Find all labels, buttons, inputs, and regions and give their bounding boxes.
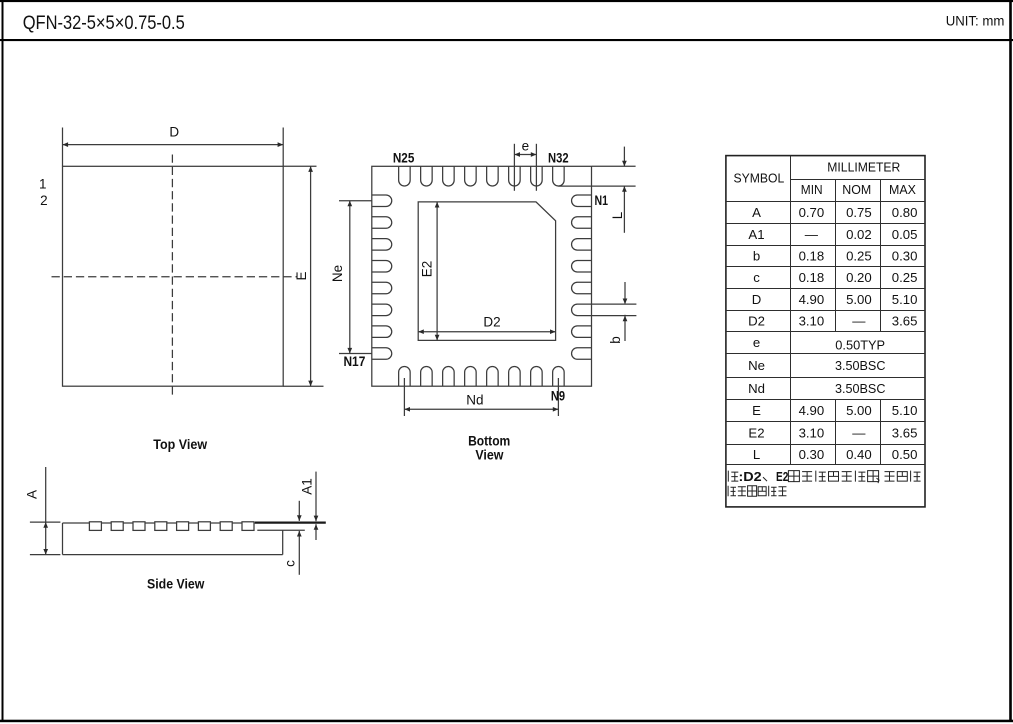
svg-text:N9: N9 — [551, 389, 565, 404]
svg-text:4.90: 4.90 — [799, 403, 825, 418]
svg-text:4.90: 4.90 — [799, 292, 825, 307]
svg-text:e: e — [753, 335, 760, 350]
svg-text:MAX: MAX — [889, 182, 916, 197]
svg-text:E: E — [294, 271, 309, 280]
svg-text:Top View: Top View — [153, 437, 207, 452]
svg-text:Ne: Ne — [330, 265, 345, 282]
svg-text:N1: N1 — [595, 193, 609, 208]
svg-text:E2: E2 — [420, 261, 435, 278]
svg-text:5.00: 5.00 — [846, 403, 872, 418]
svg-text:b: b — [753, 249, 760, 264]
svg-text:Nd: Nd — [466, 393, 483, 408]
svg-text:View: View — [475, 447, 504, 462]
svg-text:NOM: NOM — [842, 182, 871, 197]
svg-text:Bottom: Bottom — [468, 434, 510, 449]
svg-text:D2: D2 — [483, 314, 500, 329]
svg-text:QFN-32-5×5×0.75-0.5: QFN-32-5×5×0.75-0.5 — [23, 12, 185, 34]
svg-text:0.80: 0.80 — [892, 205, 918, 220]
svg-text:A: A — [24, 490, 39, 499]
svg-text:c: c — [753, 270, 760, 285]
svg-text:1: 1 — [39, 176, 47, 191]
svg-text:Ne: Ne — [748, 358, 765, 373]
svg-text:c: c — [283, 560, 298, 567]
svg-text:3.10: 3.10 — [799, 426, 825, 441]
svg-text:0.40: 0.40 — [846, 447, 872, 462]
svg-text:E2: E2 — [748, 426, 764, 441]
svg-text:SYMBOL: SYMBOL — [734, 171, 785, 186]
svg-text:—: — — [852, 426, 866, 441]
svg-text:MIN: MIN — [801, 182, 823, 197]
svg-text:3.10: 3.10 — [799, 314, 825, 329]
svg-text:Side View: Side View — [147, 577, 205, 592]
svg-text:0.70: 0.70 — [799, 205, 825, 220]
svg-text:5.10: 5.10 — [892, 292, 918, 307]
svg-text:2: 2 — [40, 193, 48, 208]
svg-text:D2: D2 — [748, 314, 765, 329]
svg-text:N25: N25 — [393, 150, 415, 165]
svg-text:N17: N17 — [343, 354, 365, 369]
svg-text:0.02: 0.02 — [846, 227, 872, 242]
svg-text:3.65: 3.65 — [892, 426, 918, 441]
svg-text:0.05: 0.05 — [892, 227, 918, 242]
svg-text:N32: N32 — [548, 150, 569, 165]
svg-text:0.50: 0.50 — [892, 447, 918, 462]
svg-text:5.10: 5.10 — [892, 403, 918, 418]
svg-text:A1: A1 — [299, 478, 314, 495]
svg-text:—: — — [852, 314, 866, 329]
svg-text:L: L — [610, 211, 625, 219]
svg-text:0.30: 0.30 — [799, 447, 825, 462]
svg-text:0.50TYP: 0.50TYP — [835, 337, 885, 352]
svg-text:Nd: Nd — [748, 381, 765, 396]
svg-text:0.30: 0.30 — [892, 249, 918, 264]
svg-text:MILLIMETER: MILLIMETER — [827, 159, 900, 174]
svg-text::D2: :D2 — [739, 470, 762, 484]
svg-text:D: D — [169, 124, 179, 139]
svg-text:0.25: 0.25 — [846, 249, 872, 264]
svg-text:0.75: 0.75 — [846, 205, 872, 220]
svg-text:0.20: 0.20 — [846, 270, 872, 285]
svg-text:5.00: 5.00 — [846, 292, 872, 307]
svg-text:E2: E2 — [776, 470, 788, 484]
svg-text:0.25: 0.25 — [892, 270, 918, 285]
svg-text:UNIT: mm: UNIT: mm — [946, 14, 1005, 29]
svg-text:E: E — [752, 403, 761, 418]
svg-text:—: — — [805, 227, 819, 242]
svg-text:3.50BSC: 3.50BSC — [835, 358, 886, 373]
svg-text:3.65: 3.65 — [892, 314, 918, 329]
svg-text:0.18: 0.18 — [799, 270, 825, 285]
svg-text:b: b — [608, 336, 623, 344]
svg-text:A: A — [752, 205, 761, 220]
svg-text:L: L — [753, 447, 760, 462]
svg-text:3.50BSC: 3.50BSC — [835, 381, 886, 396]
svg-text:A1: A1 — [748, 227, 764, 242]
svg-text:0.18: 0.18 — [799, 249, 825, 264]
svg-text:e: e — [522, 139, 530, 154]
svg-text:D: D — [752, 292, 762, 307]
